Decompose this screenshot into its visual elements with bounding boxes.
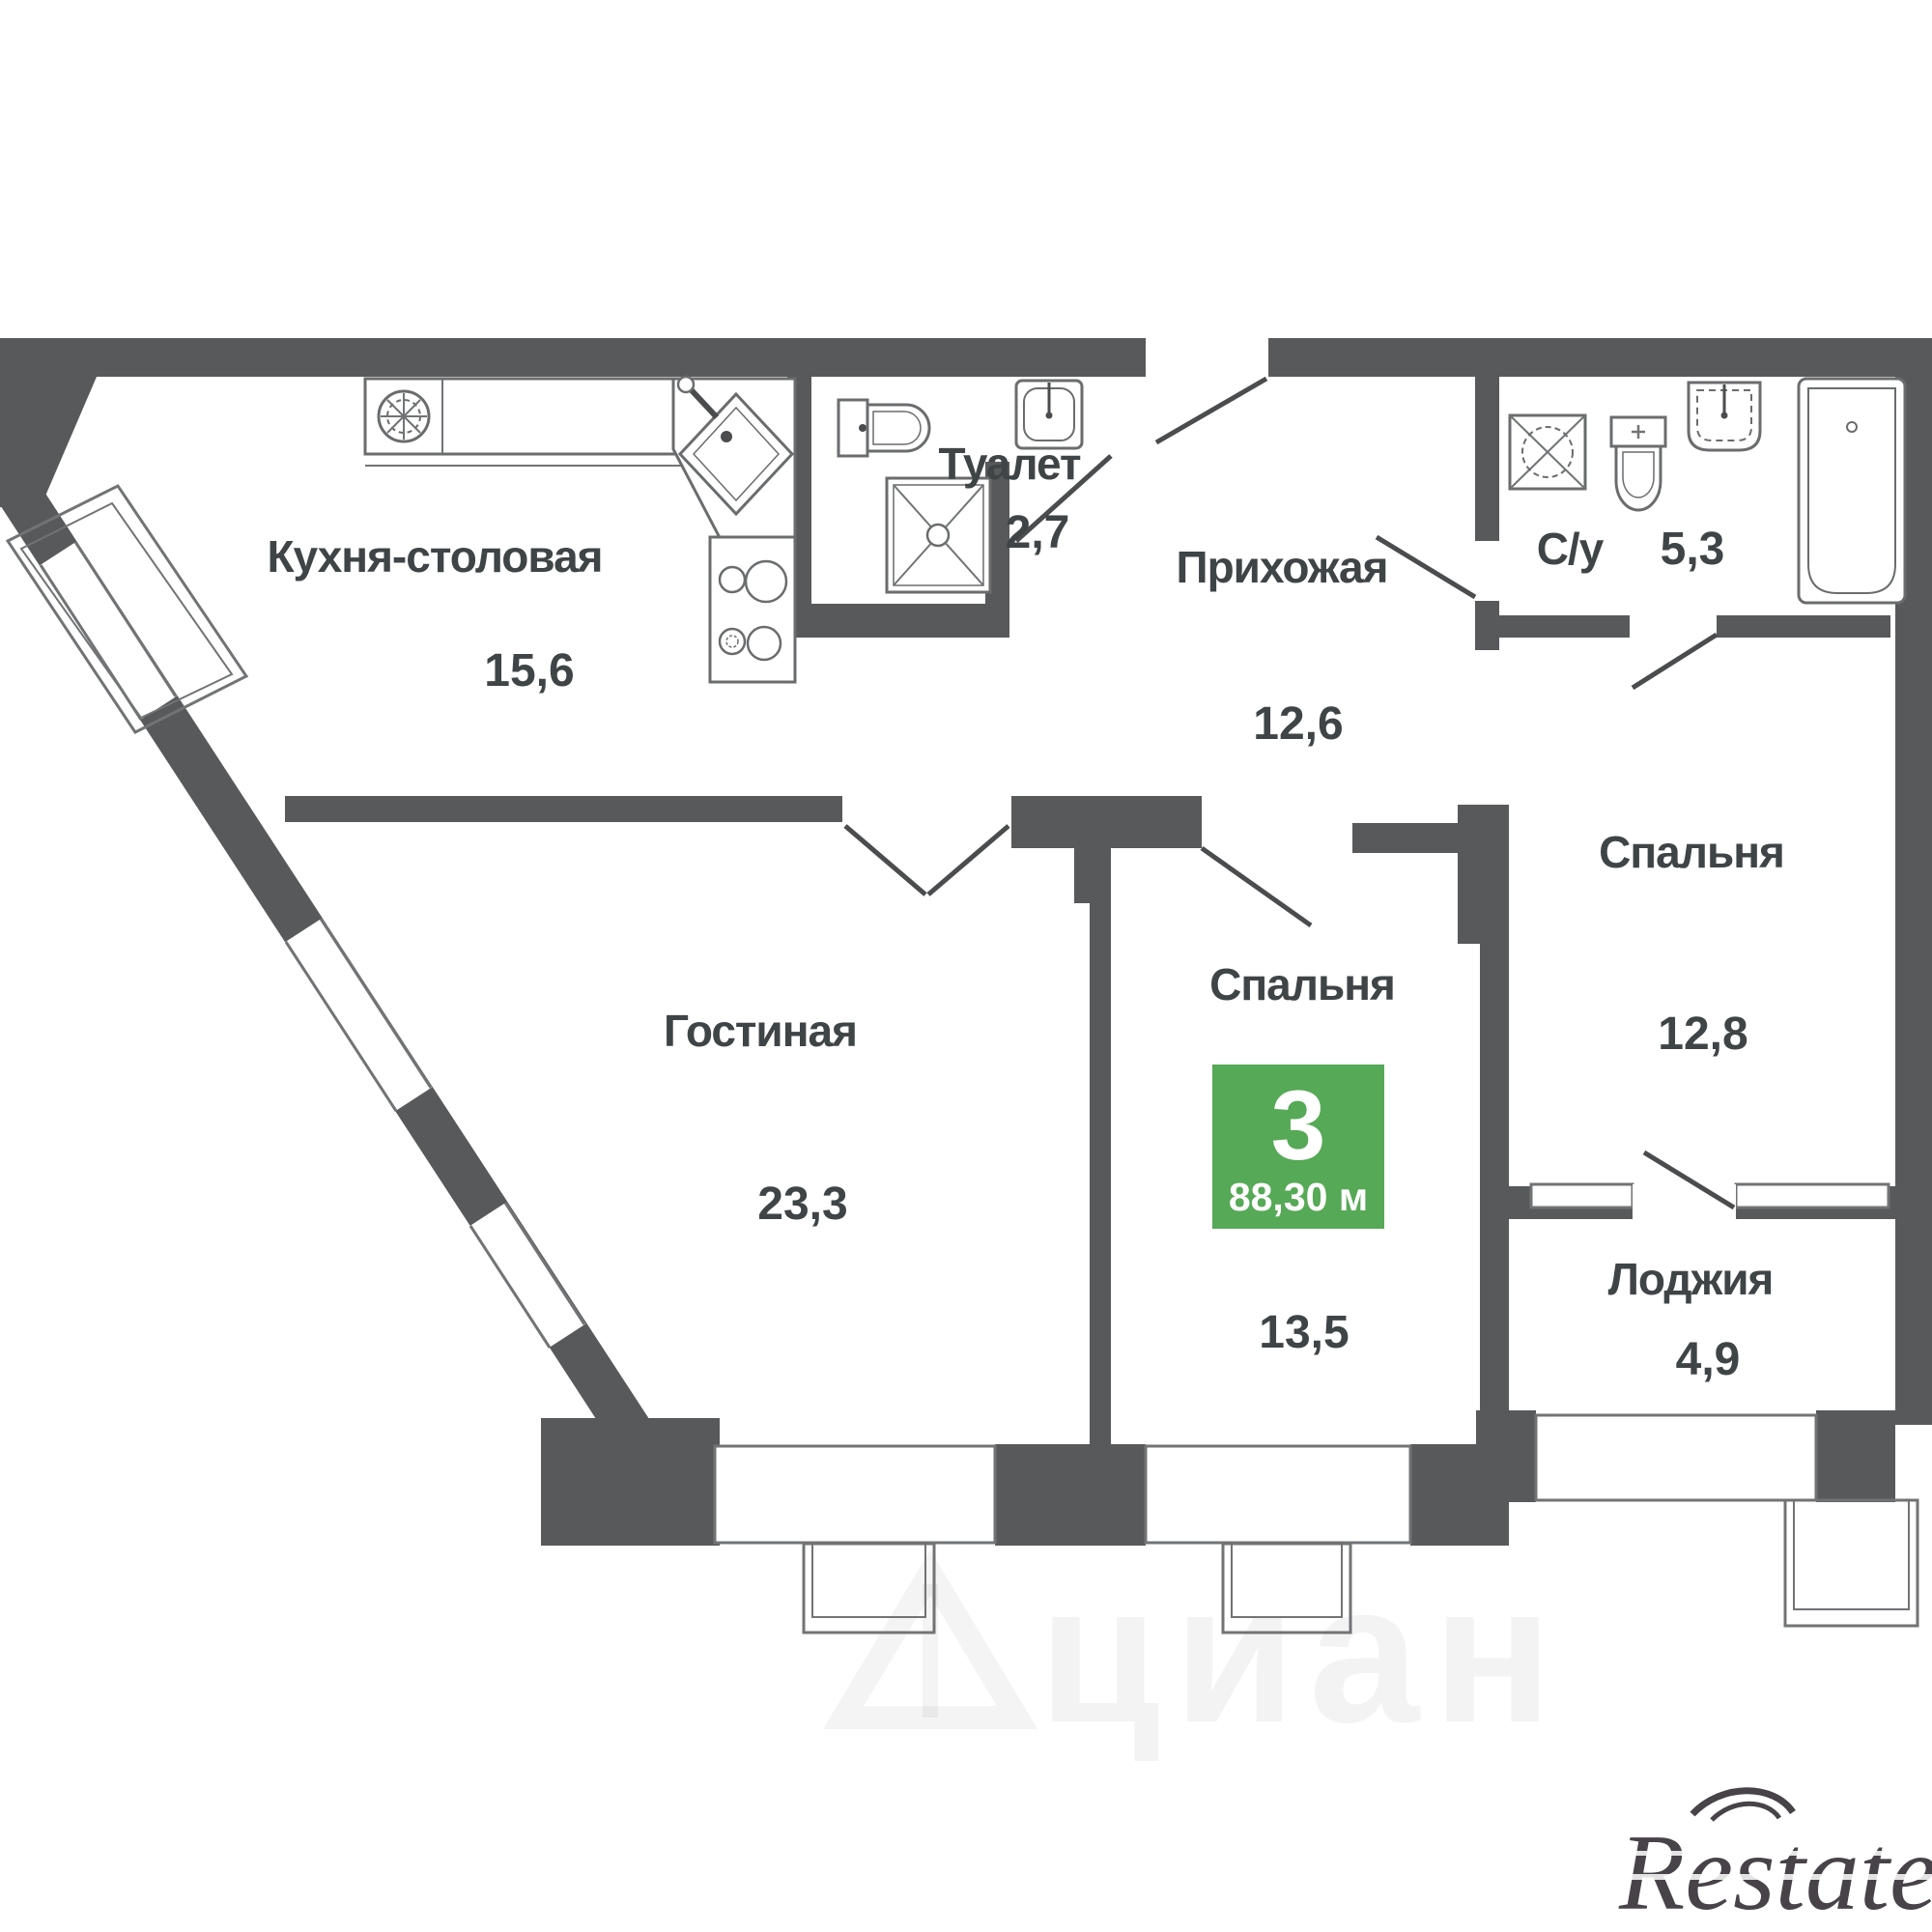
hallway-area: 12,6: [1253, 698, 1343, 750]
floor-plan-page: циан: [0, 0, 1932, 1932]
bathroom-area: 5,3: [1661, 524, 1725, 575]
living-room-label: Гостиная: [664, 1006, 857, 1056]
bedroom-right-label: Спальня: [1599, 827, 1784, 877]
window-bedroom-center: [1146, 1446, 1410, 1543]
wall-corner-bottomleft: [541, 1418, 720, 1546]
bathroom-door-swing: [1377, 537, 1475, 597]
wall-living-bedroom-upper: [1074, 848, 1111, 903]
entrance-door-swing: [1156, 379, 1266, 442]
living-door-swing-right: [928, 826, 1009, 895]
wall-loggia-bottom-left: [1476, 1410, 1536, 1502]
toilet-label: Туалет: [938, 439, 1080, 489]
living-door-swing-left: [845, 826, 925, 895]
wall-hall-stub: [1352, 823, 1462, 853]
kitchen-fixtures: [365, 377, 795, 682]
cian-watermark-text: циан: [1038, 1543, 1566, 1764]
wall-bathroom-bottom-left: [1499, 615, 1630, 638]
balcony-box-loggia: [1785, 1500, 1918, 1626]
shower-icon: [887, 478, 990, 592]
wall-bathroom-left-stub: [1475, 601, 1499, 650]
unit-badge-total-area: 88,30 м: [1229, 1175, 1368, 1219]
bedroom-right-door-swing: [1633, 635, 1717, 688]
wall-top-left: [0, 338, 1146, 377]
bathroom-label: С/у: [1537, 524, 1605, 574]
wc-icon: [838, 400, 929, 456]
bedroom-right-area: 12,8: [1658, 1009, 1747, 1060]
loggia-label: Лоджия: [1608, 1254, 1774, 1304]
restate-scan-line-2: [1619, 1874, 1932, 1880]
washing-machine-icon: [1510, 415, 1585, 489]
wall-toilet-bottom: [787, 604, 1009, 638]
restate-watermark: Restate: [1618, 1791, 1932, 1932]
restate-scan-line-1: [1619, 1851, 1932, 1856]
wall-bathroom-left: [1475, 377, 1499, 541]
wc-icon-bathroom: [1611, 417, 1665, 510]
wall-living-bedroom-lower: [1090, 903, 1111, 1444]
bedroom-center-label: Спальня: [1209, 959, 1395, 1009]
kitchen-label: Кухня-столовая: [267, 531, 602, 582]
loggia-window-sill-right: [1736, 1184, 1889, 1207]
unit-badge: 3 88,30 м: [1212, 1065, 1384, 1229]
bedroom-center-door-swing: [1202, 848, 1311, 925]
sink-icon-bathroom: [1689, 383, 1760, 450]
toilet-area: 2,7: [1006, 507, 1070, 558]
stove-icon: [710, 537, 795, 682]
bedroom-center-area: 13,5: [1259, 1307, 1349, 1358]
loggia-window-sill-left: [1531, 1184, 1633, 1207]
kitchen-area: 15,6: [484, 645, 574, 696]
bathtub-icon: [1799, 379, 1905, 603]
window-diagonal-2: [286, 919, 431, 1111]
wall-hall-bedroom-t: [1011, 796, 1202, 848]
loggia-door-opening: [1633, 1184, 1736, 1221]
living-room-area: 23,3: [757, 1179, 847, 1230]
window-diagonal-3: [470, 1203, 584, 1348]
window-living-room: [715, 1446, 995, 1543]
cian-watermark: циан: [843, 1543, 1566, 1764]
floor-plan-canvas: циан: [0, 0, 1932, 1932]
wall-bathroom-bottom-right: [1717, 615, 1890, 638]
wall-kitchen-living: [285, 796, 842, 822]
vent-icon: [379, 391, 429, 441]
windows: [41, 542, 1816, 1543]
unit-badge-rooms-count: 3: [1271, 1070, 1326, 1180]
wall-loggia-bottom-right: [1816, 1410, 1895, 1502]
hallway-label: Прихожая: [1177, 542, 1388, 592]
wall-top-right: [1268, 338, 1932, 377]
restate-watermark-text: Restate: [1618, 1813, 1932, 1932]
wall-hall-bedroomright-upper: [1458, 805, 1509, 944]
loggia-area: 4,9: [1676, 1334, 1741, 1385]
window-loggia: [1536, 1415, 1816, 1500]
wall-bottom-middle: [995, 1444, 1146, 1546]
